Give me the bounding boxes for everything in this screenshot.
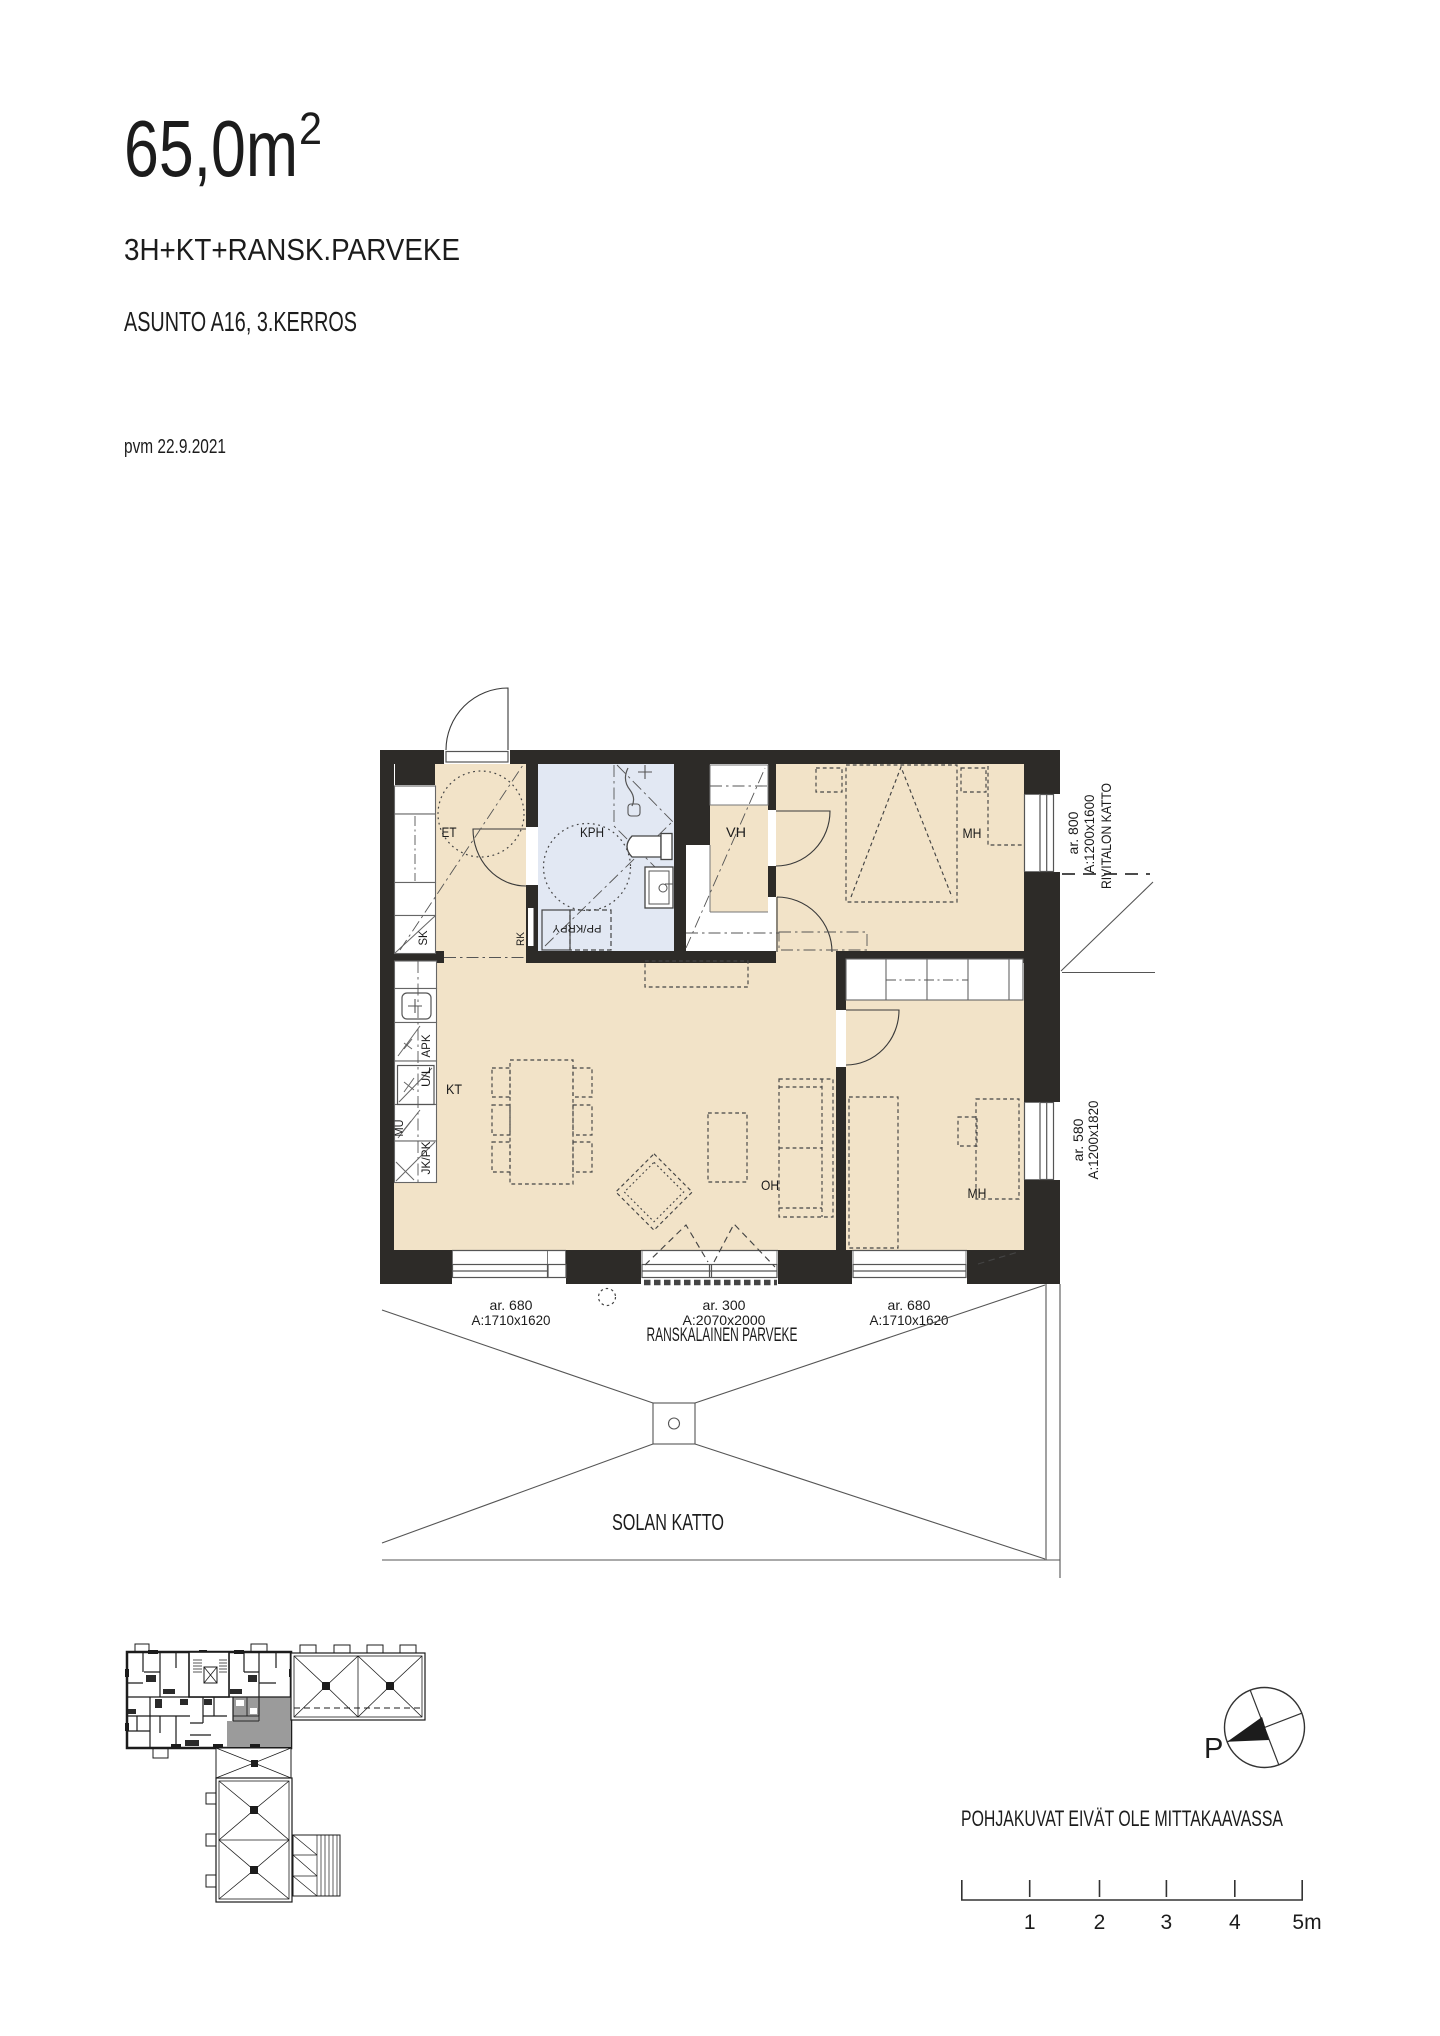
svg-text:ar. 300: ar. 300 [703,1297,746,1313]
svg-text:ar. 680: ar. 680 [888,1297,931,1313]
svg-text:RIVITALON KATTO: RIVITALON KATTO [1098,783,1114,889]
svg-text:A:1200x1820: A:1200x1820 [1085,1100,1101,1179]
svg-text:RK: RK [515,931,527,946]
svg-text:MU: MU [392,1120,406,1137]
svg-text:ar. 580: ar. 580 [1070,1118,1086,1161]
svg-text:U/L: U/L [419,1067,433,1087]
svg-text:1: 1 [1024,1911,1036,1934]
svg-text:3: 3 [1161,1911,1173,1934]
svg-text:SK: SK [416,931,430,946]
svg-text:65,0m: 65,0m [124,104,298,193]
svg-text:P: P [1204,1733,1223,1765]
svg-text:ar. 800: ar. 800 [1065,811,1081,854]
svg-text:ar. 680: ar. 680 [490,1297,533,1313]
svg-text:MH: MH [968,1185,987,1201]
svg-text:A:1710x1620: A:1710x1620 [870,1312,949,1328]
svg-text:A:1710x1620: A:1710x1620 [472,1312,551,1328]
svg-text:PP/KRPY: PP/KRPY [552,922,602,934]
svg-text:5m: 5m [1292,1911,1321,1934]
svg-text:KT: KT [446,1081,462,1097]
svg-text:KPH: KPH [580,824,604,840]
svg-text:MH: MH [963,825,982,841]
svg-text:JK/PK: JK/PK [419,1142,433,1175]
svg-text:POHJAKUVAT EIVÄT OLE MITTAKAAV: POHJAKUVAT EIVÄT OLE MITTAKAAVASSA [961,1806,1283,1831]
svg-text:RANSKALAINEN PARVEKE: RANSKALAINEN PARVEKE [647,1325,798,1346]
svg-text:pvm 22.9.2021: pvm 22.9.2021 [124,436,226,458]
svg-text:2: 2 [1094,1911,1106,1934]
svg-text:APK: APK [419,1035,433,1058]
svg-text:2: 2 [299,103,322,154]
svg-text:ET: ET [442,824,457,840]
svg-text:4: 4 [1229,1911,1241,1934]
svg-text:3H+KT+RANSK.PARVEKE: 3H+KT+RANSK.PARVEKE [124,232,460,267]
svg-text:OH: OH [761,1177,779,1193]
svg-text:SOLAN KATTO: SOLAN KATTO [612,1509,724,1535]
svg-text:VH: VH [726,824,746,840]
svg-text:A:1200x1600: A:1200x1600 [1081,794,1097,873]
svg-text:ASUNTO A16, 3.KERROS: ASUNTO A16, 3.KERROS [124,306,357,337]
